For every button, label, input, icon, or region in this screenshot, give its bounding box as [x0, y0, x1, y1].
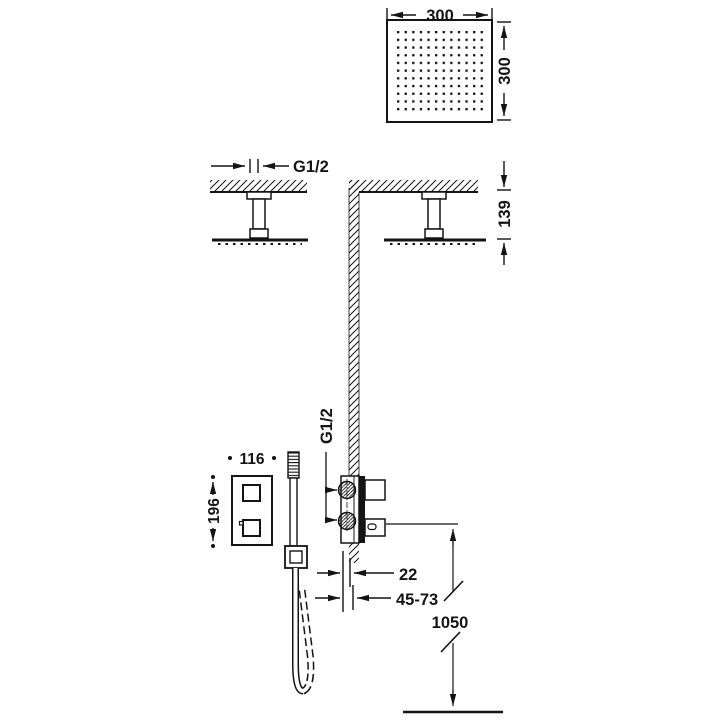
dim-valve-height-label: 196: [206, 498, 223, 524]
valve-trim-plate-section: [359, 476, 365, 543]
break-mark-bottom: [441, 632, 460, 652]
shower-installation-diagram: 300 300 G1/2: [0, 0, 720, 720]
dim-head-width-label: 300: [426, 7, 454, 25]
dim-valve-thread: [326, 452, 337, 520]
valve-side-view: [339, 476, 386, 543]
nozzle-grid: [396, 30, 485, 114]
dim-ceiling-thread: [211, 159, 289, 173]
hand-shower: [285, 452, 311, 691]
ceiling-hatch-right: [349, 180, 478, 192]
ceiling-section-left: [210, 180, 307, 192]
hand-shower-head: [288, 452, 299, 478]
shower-arm-pipe: [253, 199, 265, 229]
hand-shower-handle: [290, 478, 297, 546]
valve-front-view: [232, 476, 272, 545]
shower-head-face-view: [387, 20, 492, 122]
ceiling-shower-left: [212, 192, 308, 244]
valve-knob-bottom: [243, 520, 260, 536]
valve-knob-top-side: [365, 480, 385, 500]
dim-valve-width-label: 116: [239, 451, 264, 468]
shower-arm-nut: [425, 229, 443, 238]
shower-arm-pipe: [428, 199, 440, 229]
shower-arm-flange: [247, 192, 271, 199]
ceiling-section-right: [349, 180, 478, 192]
hand-shower-bracket-inner: [290, 551, 302, 563]
dim-trim-depth-label: 22: [399, 566, 417, 584]
knob-stop-notch: [240, 522, 244, 526]
dim-head-depth-label: 300: [496, 57, 514, 85]
dim-head-drop-label: 139: [496, 200, 514, 228]
shower-arm-nut: [250, 229, 268, 238]
shower-hose: [296, 568, 311, 691]
ceiling-hatch-left: [210, 180, 307, 192]
outlet-slot: [368, 524, 376, 530]
dim-ceiling-thread-label: G1/2: [293, 158, 329, 176]
dim-outlet-height-label: 1050: [432, 614, 469, 632]
dim-valve-thread-label: G1/2: [318, 408, 336, 444]
valve-knob-top: [243, 485, 260, 501]
shower-arm-flange: [422, 192, 446, 199]
dim-rough-in-label: 45-73: [396, 591, 438, 609]
wall-hatch-upper: [349, 180, 359, 476]
technical-drawing-page: 300 300 G1/2: [0, 0, 720, 720]
ceiling-shower-right: [384, 192, 486, 244]
